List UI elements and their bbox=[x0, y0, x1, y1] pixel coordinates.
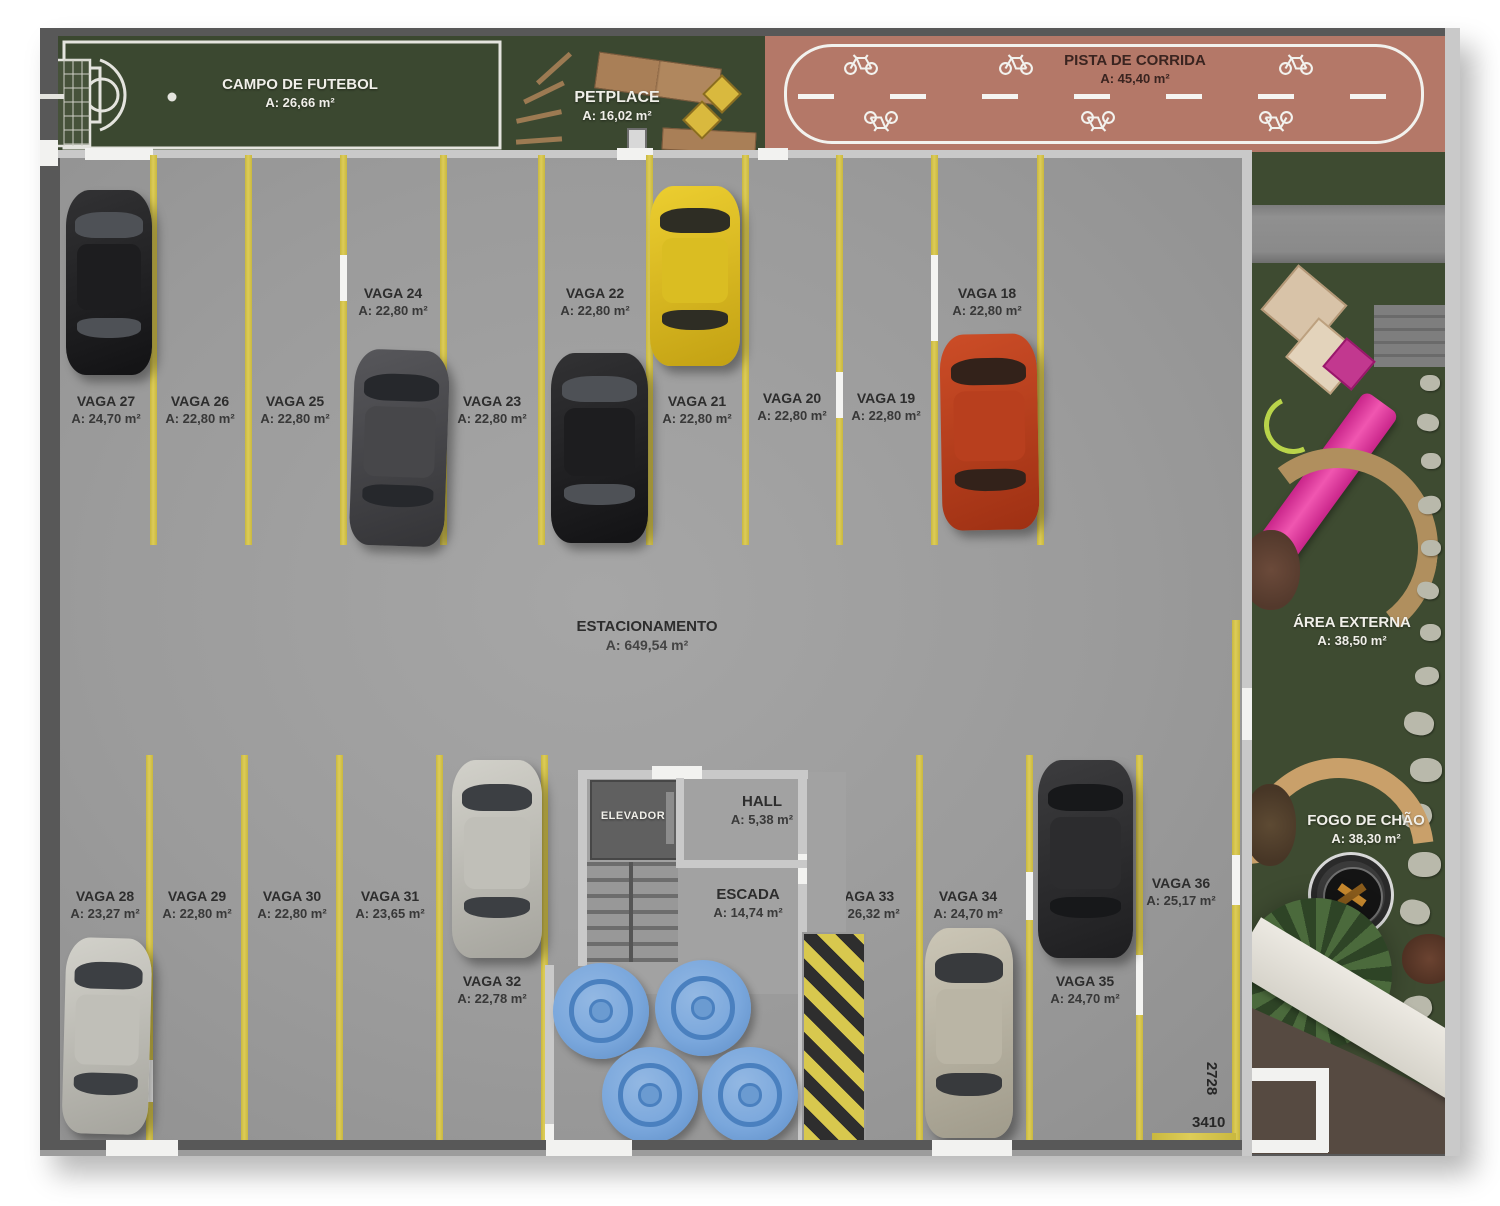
bicycle-icon bbox=[1258, 110, 1294, 134]
pouf-seat bbox=[602, 1047, 698, 1143]
stall-line bbox=[245, 155, 252, 545]
stall-line bbox=[742, 155, 749, 545]
floor-plan: CAMPO DE FUTEBOL A: 26,66 m² PETPLACE A:… bbox=[40, 28, 1460, 1156]
wall-opening bbox=[545, 1124, 554, 1140]
wall bbox=[676, 778, 684, 862]
stepping-stone bbox=[1421, 453, 1441, 469]
track-center-line bbox=[798, 94, 1410, 99]
walkway bbox=[1252, 205, 1445, 263]
pouf-seat bbox=[702, 1047, 798, 1143]
stall-line bbox=[1026, 755, 1033, 1140]
wall-opening bbox=[40, 140, 58, 166]
stall-line bbox=[241, 755, 248, 1140]
stepping-stone bbox=[1402, 710, 1436, 738]
stall-line bbox=[336, 755, 343, 1140]
stall-line-gap bbox=[340, 255, 347, 301]
car bbox=[61, 937, 152, 1135]
soccer-field-markings bbox=[40, 30, 510, 160]
wall bbox=[676, 860, 807, 868]
curb bbox=[1252, 1140, 1328, 1153]
car bbox=[1038, 760, 1133, 958]
stall-line bbox=[340, 155, 347, 545]
stall-line-gap bbox=[931, 255, 938, 341]
wall-opening bbox=[758, 148, 788, 160]
wall bbox=[545, 965, 554, 1140]
elevator-door bbox=[666, 792, 674, 844]
wall-opening bbox=[85, 148, 153, 160]
wall-top bbox=[40, 28, 1460, 36]
stepping-stone bbox=[1421, 540, 1441, 556]
bicycle-icon bbox=[1278, 52, 1314, 76]
floor-plan-canvas: CAMPO DE FUTEBOL A: 26,66 m² PETPLACE A:… bbox=[0, 0, 1500, 1206]
wall bbox=[578, 770, 587, 966]
wall-bottom-outer bbox=[40, 1150, 1252, 1156]
bicycle-icon bbox=[998, 52, 1034, 76]
wall-opening bbox=[932, 1140, 1012, 1156]
stall-line-gap bbox=[1026, 872, 1033, 920]
steps-block bbox=[1374, 305, 1445, 367]
pouf-seat bbox=[553, 963, 649, 1059]
wall bbox=[58, 150, 1252, 158]
stepping-stone bbox=[1420, 624, 1441, 641]
car bbox=[349, 348, 451, 547]
stall-line bbox=[538, 155, 545, 545]
wall-right-inner bbox=[1242, 152, 1252, 1156]
stall-line bbox=[1136, 755, 1143, 1140]
stepping-stone bbox=[1414, 665, 1440, 686]
stall-line bbox=[436, 755, 443, 1140]
stair-stringer bbox=[629, 862, 633, 962]
wall-opening bbox=[546, 1140, 632, 1156]
pouf-seat bbox=[655, 960, 751, 1056]
stall-line bbox=[931, 155, 938, 545]
shrub bbox=[1402, 934, 1445, 984]
wall-right-outer bbox=[1445, 28, 1460, 1156]
wall-left bbox=[40, 28, 58, 1154]
dimension-vertical: 2728 bbox=[1203, 1062, 1220, 1095]
bicycle-icon bbox=[843, 52, 879, 76]
car bbox=[551, 353, 648, 543]
car bbox=[939, 333, 1039, 531]
stepping-stone bbox=[1420, 375, 1440, 391]
car bbox=[452, 760, 542, 958]
hazard-ramp bbox=[802, 932, 866, 1144]
dimension-horizontal: 3410 bbox=[1192, 1114, 1225, 1131]
car bbox=[66, 190, 152, 375]
stepping-stone bbox=[1415, 412, 1440, 433]
wall-opening bbox=[1242, 688, 1252, 740]
goal-line-mark bbox=[40, 94, 64, 99]
bicycle-icon bbox=[1080, 110, 1116, 134]
wall-opening bbox=[106, 1140, 178, 1156]
wall-opening bbox=[798, 854, 807, 884]
stall-line-gap bbox=[1232, 855, 1240, 905]
stall-line-gap bbox=[1136, 955, 1143, 1015]
car bbox=[650, 186, 740, 366]
stall-line bbox=[836, 155, 843, 545]
external-area-strip: ÁREA EXTERNA A: 38,50 m² FOGO DE CHÃO A:… bbox=[1252, 152, 1445, 1154]
car bbox=[925, 928, 1013, 1138]
stepping-stone bbox=[1410, 758, 1442, 782]
stall-line bbox=[916, 755, 923, 1140]
bicycle-icon bbox=[863, 110, 899, 134]
stall-line-gap bbox=[836, 372, 843, 418]
